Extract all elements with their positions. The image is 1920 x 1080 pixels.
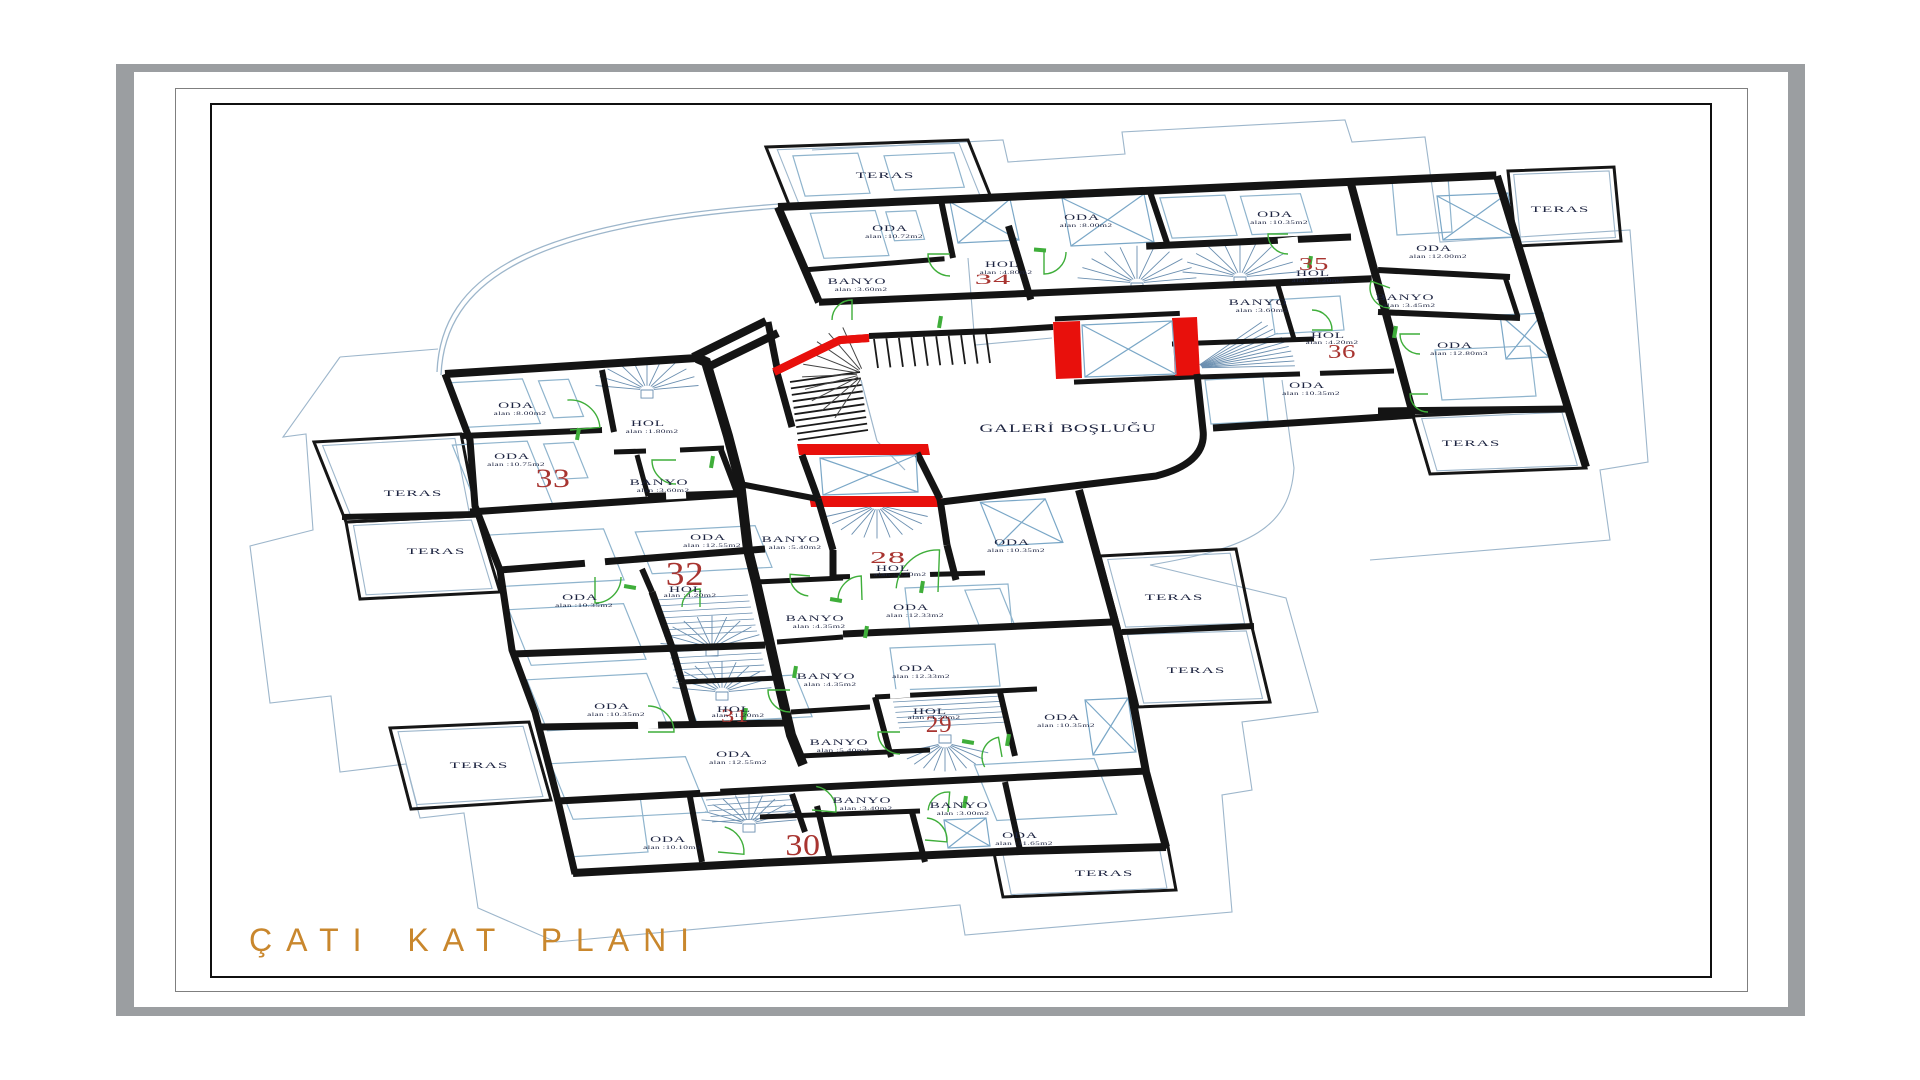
svg-text:alan :10.35m2: alan :10.35m2 bbox=[1250, 219, 1308, 225]
svg-text:ODA: ODA bbox=[994, 537, 1030, 547]
svg-text:BANYO: BANYO bbox=[1376, 292, 1435, 302]
svg-text:BANYO: BANYO bbox=[630, 477, 689, 487]
svg-text:ODA: ODA bbox=[650, 834, 686, 844]
svg-text:alan :5.40m2: alan :5.40m2 bbox=[769, 544, 822, 550]
svg-text:alan :4.80m2: alan :4.80m2 bbox=[980, 269, 1033, 275]
svg-text:alan :12.00m2: alan :12.00m2 bbox=[1409, 253, 1467, 259]
svg-text:alan :10.35m2: alan :10.35m2 bbox=[1282, 390, 1340, 396]
svg-text:alan :4.20m2: alan :4.20m2 bbox=[1292, 277, 1345, 283]
svg-text:alan :10.35m2: alan :10.35m2 bbox=[555, 602, 613, 608]
svg-text:alan :10.72m2: alan :10.72m2 bbox=[865, 233, 923, 239]
svg-text:alan :4.20m2: alan :4.20m2 bbox=[1306, 339, 1359, 345]
svg-text:BANYO: BANYO bbox=[797, 671, 856, 681]
svg-text:alan :1.20m2: alan :1.20m2 bbox=[712, 712, 765, 718]
svg-text:ODA: ODA bbox=[1437, 340, 1473, 350]
svg-text:alan :1.80m2: alan :1.80m2 bbox=[626, 428, 679, 434]
svg-text:TERAS: TERAS bbox=[450, 760, 509, 769]
svg-text:TERAS: TERAS bbox=[1075, 868, 1134, 877]
svg-text:ODA: ODA bbox=[1002, 830, 1038, 840]
svg-text:alan :10.35m2: alan :10.35m2 bbox=[987, 547, 1045, 553]
svg-text:alan :3.40m2: alan :3.40m2 bbox=[840, 805, 893, 811]
svg-text:alan :10.10m3: alan :10.10m3 bbox=[643, 844, 701, 850]
svg-text:BANYO: BANYO bbox=[810, 737, 869, 747]
svg-text:TERAS: TERAS bbox=[856, 170, 915, 179]
svg-text:alan :12.55m2: alan :12.55m2 bbox=[683, 542, 741, 548]
svg-text:alan :12.80m3: alan :12.80m3 bbox=[1430, 350, 1488, 356]
svg-text:alan :4.35m2: alan :4.35m2 bbox=[804, 681, 857, 687]
svg-text:ODA: ODA bbox=[1416, 243, 1452, 253]
svg-text:alan :4.20m2: alan :4.20m2 bbox=[874, 571, 927, 577]
svg-text:TERAS: TERAS bbox=[384, 488, 443, 497]
svg-text:alan :10.35m2: alan :10.35m2 bbox=[1037, 722, 1095, 728]
svg-text:HOL: HOL bbox=[985, 259, 1019, 269]
svg-text:alan :3.60m2: alan :3.60m2 bbox=[637, 487, 690, 493]
svg-text:BANYO: BANYO bbox=[833, 795, 892, 805]
svg-text:alan :3.60m2: alan :3.60m2 bbox=[835, 286, 888, 292]
svg-text:TERAS: TERAS bbox=[1531, 204, 1590, 213]
svg-text:ODA: ODA bbox=[1289, 380, 1325, 390]
svg-text:ODA: ODA bbox=[893, 602, 929, 612]
svg-text:alan :8.00m2: alan :8.00m2 bbox=[1060, 222, 1113, 228]
svg-text:alan :10.35m2: alan :10.35m2 bbox=[587, 711, 645, 717]
svg-text:ODA: ODA bbox=[1064, 212, 1100, 222]
svg-text:GALERİ BOŞLUĞU: GALERİ BOŞLUĞU bbox=[980, 421, 1157, 435]
svg-text:BANYO: BANYO bbox=[1229, 297, 1288, 307]
svg-text:33: 33 bbox=[535, 464, 570, 493]
svg-text:alan :12.55m2: alan :12.55m2 bbox=[709, 759, 767, 765]
svg-text:TERAS: TERAS bbox=[1442, 438, 1501, 447]
svg-text:alan :3.45m2: alan :3.45m2 bbox=[1383, 302, 1436, 308]
svg-text:alan :3.00m2: alan :3.00m2 bbox=[937, 810, 990, 816]
svg-text:ODA: ODA bbox=[494, 451, 530, 461]
svg-text:alan :5.40m2: alan :5.40m2 bbox=[817, 747, 870, 753]
svg-text:ODA: ODA bbox=[1044, 712, 1080, 722]
svg-text:alan :11.65m2: alan :11.65m2 bbox=[995, 840, 1052, 846]
svg-text:alan :8.00m2: alan :8.00m2 bbox=[494, 410, 547, 416]
svg-text:TERAS: TERAS bbox=[407, 546, 466, 555]
svg-text:BANYO: BANYO bbox=[828, 276, 887, 286]
svg-text:HOL: HOL bbox=[631, 418, 665, 428]
svg-text:ODA: ODA bbox=[690, 532, 726, 542]
svg-text:BANYO: BANYO bbox=[930, 800, 989, 810]
svg-text:TERAS: TERAS bbox=[1167, 665, 1226, 674]
svg-text:alan :10.75m2: alan :10.75m2 bbox=[487, 461, 545, 467]
svg-text:ODA: ODA bbox=[498, 400, 534, 410]
svg-text:30: 30 bbox=[785, 828, 820, 862]
svg-text:ODA: ODA bbox=[594, 701, 630, 711]
svg-text:alan :3.60m2: alan :3.60m2 bbox=[1236, 307, 1289, 313]
svg-text:BANYO: BANYO bbox=[762, 534, 821, 544]
svg-text:ODA: ODA bbox=[562, 592, 598, 602]
svg-text:alan :4.20m2: alan :4.20m2 bbox=[908, 714, 961, 720]
svg-text:alan :12.33m2: alan :12.33m2 bbox=[892, 673, 950, 679]
svg-text:alan :4.35m2: alan :4.35m2 bbox=[793, 623, 846, 629]
svg-text:TERAS: TERAS bbox=[1145, 592, 1204, 601]
svg-text:alan :4.20m2: alan :4.20m2 bbox=[664, 592, 717, 598]
svg-text:ODA: ODA bbox=[872, 223, 908, 233]
svg-text:BANYO: BANYO bbox=[786, 613, 845, 623]
svg-text:ODA: ODA bbox=[899, 663, 935, 673]
svg-text:ODA: ODA bbox=[1257, 209, 1293, 219]
svg-text:alan :12.33m2: alan :12.33m2 bbox=[886, 612, 944, 618]
svg-text:ODA: ODA bbox=[716, 749, 752, 759]
